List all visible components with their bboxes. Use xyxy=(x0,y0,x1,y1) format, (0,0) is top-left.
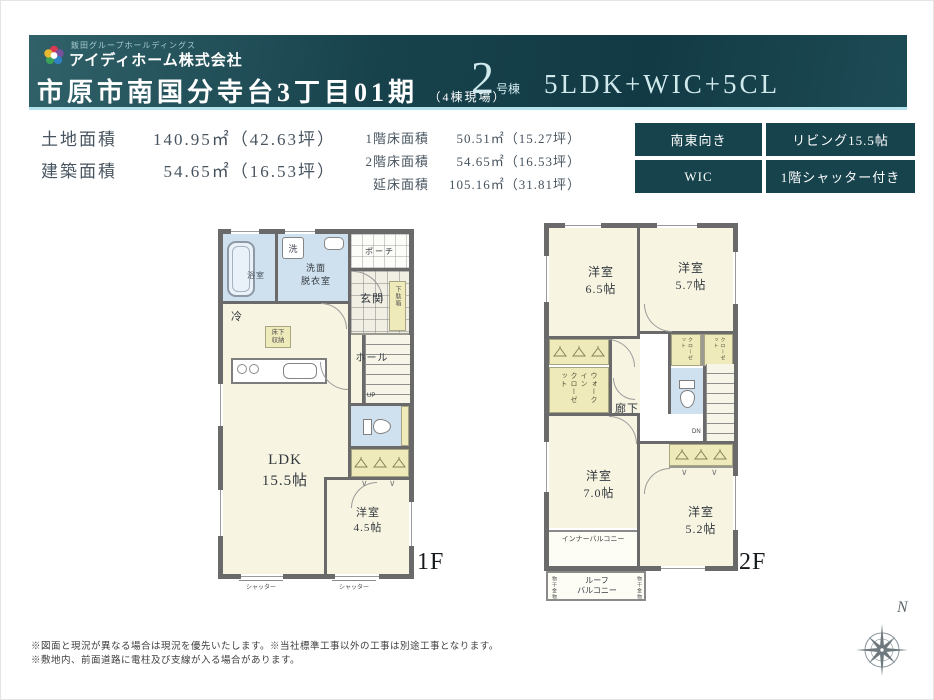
wall xyxy=(668,334,671,414)
entrance-step-line xyxy=(351,333,409,335)
wall xyxy=(351,477,409,480)
hanger-icon xyxy=(551,345,607,359)
wall xyxy=(637,228,640,339)
badge-wic: WIC xyxy=(635,160,762,193)
closet-57-a: クローゼット xyxy=(671,334,701,366)
wall xyxy=(703,366,706,441)
floor2-plan: ウォークイン クローゼット クローゼット クローゼット インナーバルコニー xyxy=(544,223,738,571)
floor2-area-label: 2階床面積 xyxy=(351,151,429,170)
bathtub-icon xyxy=(227,241,255,297)
north-label: N xyxy=(897,599,908,617)
floor2-label: 2F xyxy=(739,549,766,576)
total-area-label: 延床面積 xyxy=(351,174,429,193)
up-label: UP xyxy=(367,392,375,400)
bedroom-closet-1f xyxy=(351,449,409,477)
property-title: 市原市南国分寺台3丁目01期 （4棟現場） xyxy=(37,72,507,109)
walk-in-closet: ウォークイン クローゼット xyxy=(549,367,609,413)
window xyxy=(241,574,283,579)
dn-label: DN xyxy=(692,428,701,436)
inner-balcony: インナーバルコニー xyxy=(549,530,637,566)
shoe-cabinet-label: 下駄箱 xyxy=(393,286,402,307)
washroom-label: 洗面 脱衣室 xyxy=(291,262,341,287)
wall xyxy=(549,336,640,339)
feature-badges: 南東向き リビング15.5帖 WIC 1階シャッター付き xyxy=(635,123,915,193)
floor2-area-value: 54.65㎡（16.53坪） xyxy=(429,151,581,170)
floor-storage: 床下 収納 xyxy=(265,326,291,348)
closet-52 xyxy=(669,444,733,466)
total-area-row: 延床面積 105.16㎡（31.81坪） xyxy=(351,174,581,193)
window xyxy=(733,252,738,304)
ldk-label: LDK 15.5帖 xyxy=(245,450,325,492)
roof-balcony: 物干金物 ルーフ バルコニー 物干金物 xyxy=(546,571,646,601)
toilet-icon xyxy=(679,380,695,406)
laundry-fitting-label: 物干金物 xyxy=(635,576,642,600)
wall xyxy=(223,301,351,304)
window xyxy=(544,442,549,492)
window xyxy=(218,490,223,536)
floor-storage-label: 床下 収納 xyxy=(272,329,285,345)
building-area-value: 54.65㎡（16.53坪） xyxy=(141,157,336,182)
closet-divider xyxy=(701,334,704,366)
sink-icon xyxy=(324,237,344,250)
flyer-canvas: 飯田グループホールディングス アイディホーム株式会社 市原市南国分寺台3丁目01… xyxy=(0,0,934,700)
closet-label: クローゼット xyxy=(712,337,726,363)
unit-block: 2 号棟 5LDK+WIC+5CL xyxy=(471,53,780,103)
floor2-area-row: 2階床面積 54.65㎡（16.53坪） xyxy=(351,151,581,170)
fridge-label: 冷 xyxy=(231,310,243,325)
window xyxy=(231,229,259,234)
wic-closet-strip xyxy=(549,339,609,365)
inner-balcony-label: インナーバルコニー xyxy=(549,534,637,544)
property-title-text: 市原市南国分寺台3丁目01期 xyxy=(37,78,418,107)
building-area-label: 建築面積 xyxy=(41,157,141,182)
wall xyxy=(324,477,354,480)
hall-label: ホール xyxy=(350,352,394,366)
floor1-area-row: 1階床面積 50.51㎡（15.27坪） xyxy=(351,128,581,147)
badge-shutter: 1階シャッター付き xyxy=(766,160,915,193)
land-area-label: 土地面積 xyxy=(41,125,141,150)
window xyxy=(218,384,223,426)
bedroom-70-label: 洋室 7.0帖 xyxy=(569,468,629,502)
hanger-icon xyxy=(352,456,408,470)
wic-label: ウォークイン クローゼット xyxy=(559,372,599,410)
floor1-area-value: 50.51㎡（15.27坪） xyxy=(429,128,581,147)
wall xyxy=(362,335,365,403)
company-logo-icon xyxy=(41,43,67,69)
wall xyxy=(637,331,733,334)
washer-icon: 洗 xyxy=(282,237,304,259)
wall xyxy=(275,234,278,301)
wall xyxy=(351,446,409,449)
floor1-plan: 洗 下駄箱 床下 収納 浴室 洗面 脱衣室 ポーチ 玄関 ホール UP 冷 LD… xyxy=(218,229,414,579)
window xyxy=(661,566,705,571)
bedroom-57-label: 洋室 5.7帖 xyxy=(661,260,721,294)
hanger-icon xyxy=(673,448,729,462)
roof-balcony-label: ルーフ バルコニー xyxy=(566,576,628,597)
window xyxy=(409,502,414,546)
toilet-icon xyxy=(363,419,389,435)
compass-icon xyxy=(852,618,912,678)
window xyxy=(285,229,315,234)
land-area-value: 140.95㎡（42.63坪） xyxy=(141,125,336,150)
closet-label: クローゼット xyxy=(679,337,693,363)
closet-divider xyxy=(669,466,733,468)
note-line-2: ※敷地内、前面道路に電柱及び支線が入る場合があります。 xyxy=(31,654,499,668)
floor1-area-label: 1階床面積 xyxy=(351,128,429,147)
window xyxy=(657,223,697,228)
floor1-label: 1F xyxy=(417,549,444,576)
wall xyxy=(351,403,409,406)
window xyxy=(544,256,549,302)
kitchen-sink-icon xyxy=(283,363,317,379)
entrance-label: 玄関 xyxy=(352,292,392,307)
wall xyxy=(637,413,640,566)
area-table-floors: 1階床面積 50.51㎡（15.27坪） 2階床面積 54.65㎡（16.53坪… xyxy=(351,128,581,197)
unit-suffix: 号棟 xyxy=(496,80,520,97)
company-name: アイディホーム株式会社 xyxy=(69,49,243,70)
plan-type: 5LDK+WIC+5CL xyxy=(544,69,780,100)
closet-57-b: クローゼット xyxy=(704,334,733,366)
bedroom-45-label: 洋室 4.5帖 xyxy=(343,506,393,537)
window xyxy=(565,223,601,228)
stove-burner-icon xyxy=(237,364,247,374)
area-table-main: 土地面積 140.95㎡（42.63坪） 建築面積 54.65㎡（16.53坪） xyxy=(41,125,336,189)
folding-door-mark: ∨ xyxy=(711,468,718,477)
bath-label: 浴室 xyxy=(247,270,265,281)
land-area-row: 土地面積 140.95㎡（42.63坪） xyxy=(41,125,336,150)
stairs-2f xyxy=(706,364,734,441)
hallway-label: 廊下 xyxy=(613,402,641,417)
bedroom-65-label: 洋室 6.5帖 xyxy=(571,264,631,298)
porch-label: ポーチ xyxy=(353,246,407,257)
wall xyxy=(351,268,409,271)
shutter-label: シャッター xyxy=(239,580,283,591)
window xyxy=(733,476,738,530)
stove-burner-icon xyxy=(249,364,259,374)
disclaimer-notes: ※図面と現況が異なる場合は現況を優先いたします。※当社標準工事以外の工事は別途工… xyxy=(31,640,499,668)
badge-living: リビング15.5帖 xyxy=(766,123,915,156)
shutter-label: シャッター xyxy=(332,580,376,591)
wall xyxy=(637,441,733,444)
folding-door-mark: ∨ xyxy=(361,479,368,488)
bedroom-52-label: 洋室 5.2帖 xyxy=(671,504,731,538)
window xyxy=(335,574,379,579)
building-area-row: 建築面積 54.65㎡（16.53坪） xyxy=(41,157,336,182)
total-area-value: 105.16㎡（31.81坪） xyxy=(429,174,581,193)
storage-strip xyxy=(401,406,409,446)
note-line-1: ※図面と現況が異なる場合は現況を優先いたします。※当社標準工事以外の工事は別途工… xyxy=(31,640,499,654)
folding-door-mark: ∨ xyxy=(389,479,396,488)
laundry-fitting-label: 物干金物 xyxy=(550,576,557,600)
washer-label: 洗 xyxy=(288,242,297,255)
folding-door-mark: ∨ xyxy=(681,468,688,477)
unit-number: 2 xyxy=(471,53,494,103)
header-banner: 飯田グループホールディングス アイディホーム株式会社 市原市南国分寺台3丁目01… xyxy=(29,35,907,110)
badge-facing: 南東向き xyxy=(635,123,762,156)
